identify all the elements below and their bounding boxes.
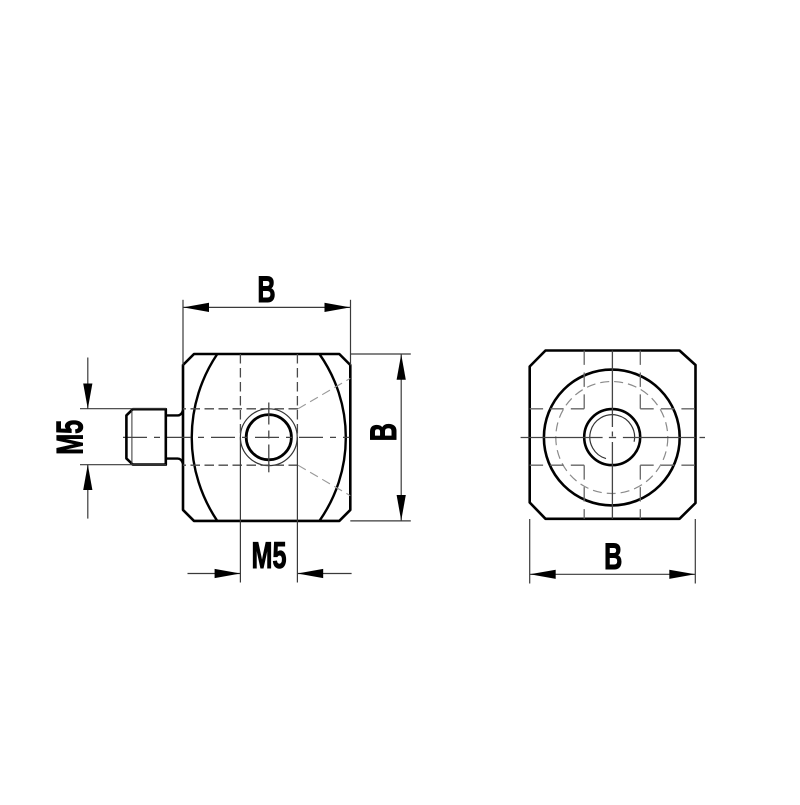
svg-text:B: B (257, 268, 275, 310)
svg-text:M5: M5 (252, 534, 287, 576)
svg-text:B: B (362, 423, 404, 441)
svg-text:M5: M5 (49, 420, 91, 455)
svg-text:B: B (604, 535, 622, 577)
